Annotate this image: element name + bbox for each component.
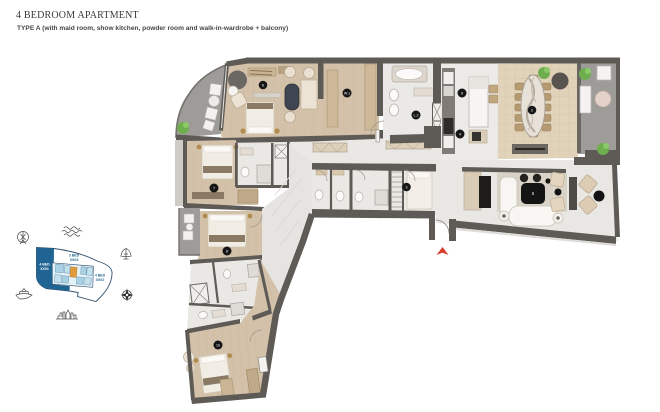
svg-text:XX01: XX01 bbox=[40, 267, 49, 271]
svg-text:XX02: XX02 bbox=[96, 278, 105, 282]
svg-text:4: 4 bbox=[459, 132, 461, 136]
svg-text:10: 10 bbox=[216, 343, 220, 347]
svg-text:7: 7 bbox=[213, 186, 215, 190]
svg-text:2: 2 bbox=[531, 108, 533, 112]
svg-text:L.2: L.2 bbox=[414, 113, 419, 117]
svg-text:6: 6 bbox=[262, 83, 264, 87]
svg-text:W.1: W.1 bbox=[344, 91, 350, 95]
svg-text:9: 9 bbox=[461, 91, 463, 95]
svg-text:8: 8 bbox=[226, 249, 228, 253]
svg-text:XX03: XX03 bbox=[70, 258, 79, 262]
svg-text:3: 3 bbox=[406, 185, 408, 189]
